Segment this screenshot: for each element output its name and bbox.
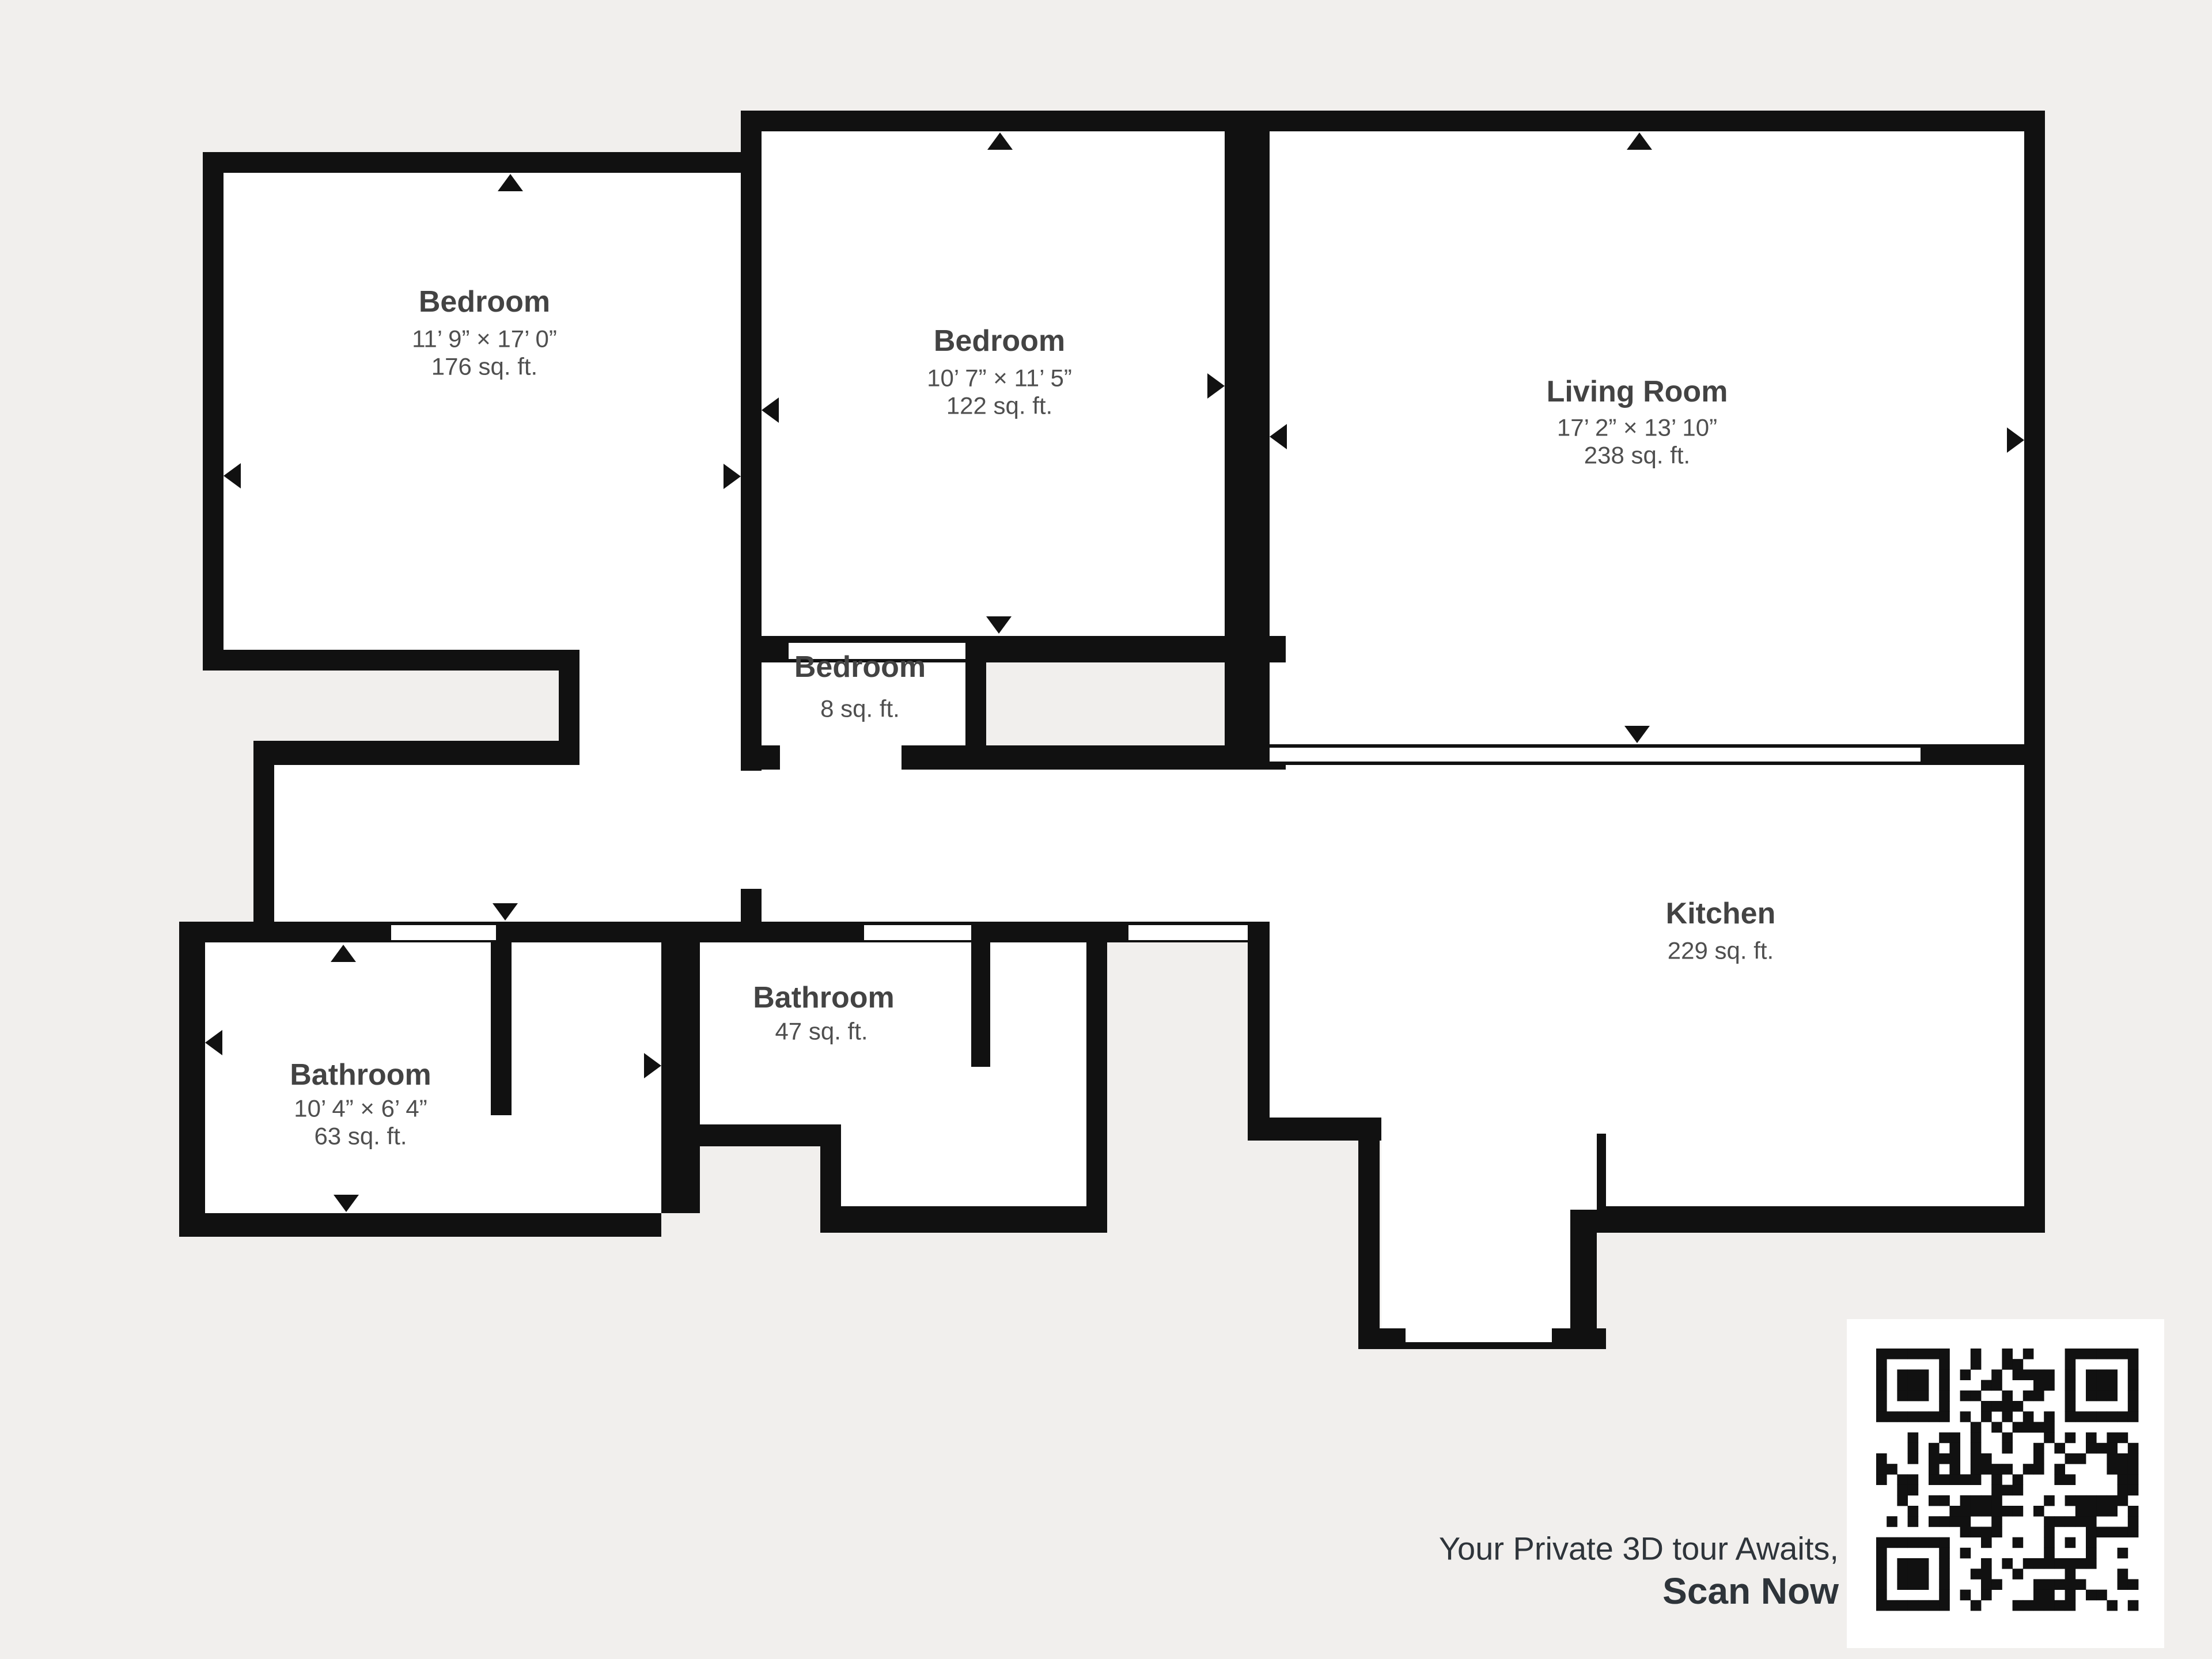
room-name: Bathroom: [753, 981, 895, 1014]
wall-bedroom-left-top: [203, 152, 762, 173]
wall-kitchen-bottom: [1597, 1206, 2024, 1233]
door-opening-entry: [1406, 1328, 1552, 1342]
room-area-bathroom-middle-pocket: [841, 1124, 1086, 1206]
wall-top-main: [741, 111, 2045, 131]
wall-counter-thin: [1597, 1134, 1606, 1210]
floor-plan-page: Bedroom 11’ 9” × 17’ 0” 176 sq. ft. Bedr…: [0, 0, 2212, 1659]
wall-bathroom-middle-pocket-bottom: [820, 1206, 1107, 1233]
wall-notch-bottom: [253, 741, 579, 765]
wall-vestibule-left: [1358, 1118, 1380, 1349]
room-name: Bathroom: [290, 1058, 431, 1092]
room-area-value: 63 sq. ft.: [314, 1123, 407, 1150]
wall-kitchen-left: [1248, 922, 1270, 1141]
room-label-bedroom-left: Bedroom 11’ 9” × 17’ 0” 176 sq. ft.: [412, 285, 557, 380]
wall-bedroom-left-bottom: [203, 650, 579, 671]
wall-bedroom-left-left: [203, 152, 224, 671]
wall-corridor-left: [253, 741, 274, 942]
room-area-entry-vestibule: [1381, 1206, 1597, 1328]
room-area-kitchen-lower: [1381, 1118, 2024, 1206]
qr-code-icon: [1847, 1319, 2164, 1648]
room-area-bathroom-left: [205, 942, 661, 1213]
room-area-value: 229 sq. ft.: [1668, 937, 1774, 964]
room-dimensions: 11’ 9” × 17’ 0”: [412, 325, 557, 353]
window-band-top-line: [1270, 744, 1921, 748]
wall-bathroom-middle-right: [1086, 922, 1107, 1233]
wall-right-exterior: [2024, 111, 2045, 1233]
room-area-value: 8 sq. ft.: [820, 695, 900, 722]
room-area-kitchen: [1270, 922, 2024, 1118]
room-area-value: 47 sq. ft.: [775, 1018, 868, 1045]
room-dimensions: 17’ 2” × 13’ 10”: [1557, 414, 1717, 441]
room-area-value: 176 sq. ft.: [431, 353, 537, 380]
door-opening-bathroom-left: [391, 925, 496, 940]
door-opening-bathroom-middle: [864, 925, 971, 940]
wall-bathroom-left-stub: [491, 942, 512, 1115]
wall-vertical-shared-upper: [741, 111, 762, 771]
room-area-value: 122 sq. ft.: [946, 392, 1052, 419]
room-area-bathroom-middle: [700, 942, 1086, 1124]
room-name: Bedroom: [794, 650, 926, 684]
cta-text: Your Private 3D tour Awaits, Scan Now: [1439, 1531, 1839, 1612]
wall-living-bottom-solid: [1921, 744, 2024, 765]
wall-middle-living-shared: [1225, 111, 1270, 765]
cta-line1: Your Private 3D tour Awaits,: [1439, 1531, 1839, 1567]
room-label-bedroom-middle: Bedroom 10’ 7” × 11’ 5” 122 sq. ft.: [927, 324, 1072, 419]
room-area-hallway: [762, 765, 2024, 922]
window-band-bottom-line: [1270, 762, 1921, 765]
wall-between-bathrooms: [661, 922, 700, 1213]
wall-bathroom-middle-jog: [820, 1124, 841, 1206]
window-opening-void: [1128, 925, 1248, 940]
cta-line2: Scan Now: [1662, 1570, 1839, 1612]
floor-plan-drawing: Bedroom 11’ 9” × 17’ 0” 176 sq. ft. Bedr…: [0, 0, 2212, 1659]
room-name: Living Room: [1547, 375, 1728, 408]
room-name: Bedroom: [934, 324, 1065, 358]
room-name: Bedroom: [419, 285, 550, 319]
wall-bathroom-left-left: [179, 922, 205, 1237]
room-dimensions: 10’ 4” × 6’ 4”: [294, 1095, 427, 1122]
door-opening-hallway-closet: [780, 745, 902, 770]
room-area-corridor: [274, 765, 579, 922]
room-area-bedroom-left: [203, 152, 762, 671]
wall-entry-jamb: [559, 650, 579, 741]
wall-vestibule-right: [1570, 1210, 1597, 1349]
room-area-bedroom-left-entry: [579, 650, 762, 922]
room-name: Kitchen: [1666, 897, 1776, 930]
wall-bathroom-middle-step: [661, 1124, 841, 1146]
room-dimensions: 10’ 7” × 11’ 5”: [927, 365, 1072, 392]
room-area-value: 238 sq. ft.: [1584, 442, 1690, 469]
wall-bathroom-middle-stub: [971, 942, 990, 1067]
wall-bathroom-left-bottom: [179, 1213, 661, 1237]
